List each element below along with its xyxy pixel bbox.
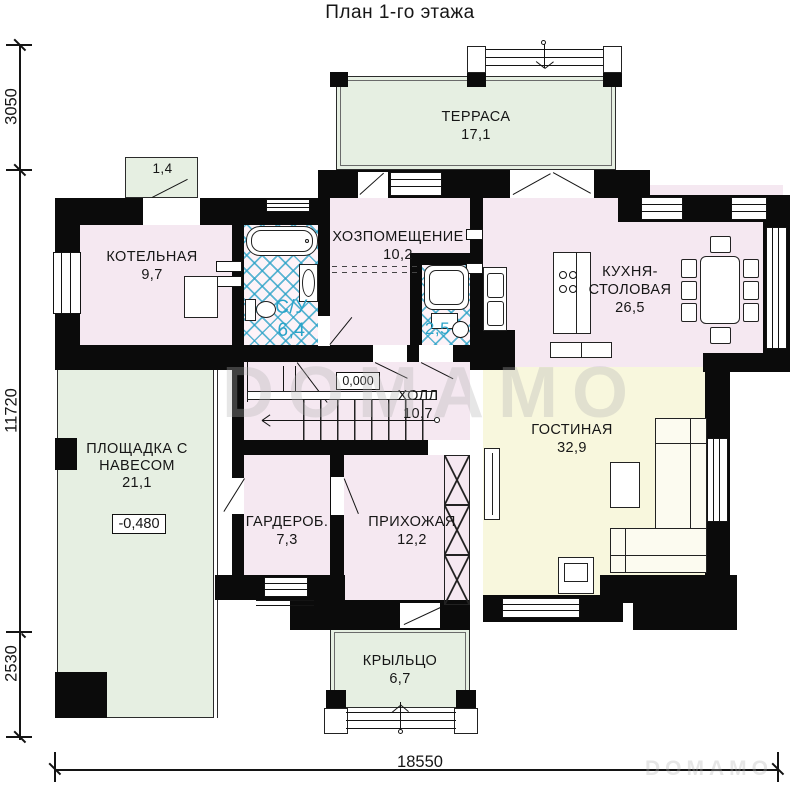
elevation-mark-platform: -0,480: [112, 514, 166, 534]
dim-ext-4: [6, 736, 32, 738]
wc1-name: С/У: [264, 296, 319, 319]
room-label-terrace: ТЕРРАСА 17,1: [396, 108, 556, 144]
door-opening-terrace-double: [510, 170, 594, 198]
kitchen-name-1: КУХНЯ-: [560, 263, 700, 281]
utility-dashed-line: [332, 266, 418, 267]
dim-ext-2: [6, 169, 32, 171]
room-label-wc2: 2,5: [415, 320, 460, 338]
window-kitchen-top-2: [731, 197, 767, 220]
porch-pier: [456, 690, 476, 708]
bathtub-inner: [251, 230, 313, 252]
door-opening-terrace-1: [358, 172, 388, 198]
porch-pier: [326, 690, 346, 708]
sink-bowl: [487, 301, 504, 326]
living-area: 32,9: [512, 439, 632, 457]
boiler-name: КОТЕЛЬНАЯ: [92, 248, 212, 266]
entry-name: ПРИХОЖАЯ: [352, 513, 472, 531]
terrace-name: ТЕРРАСА: [396, 108, 556, 126]
cabinet-inner: [564, 563, 588, 582]
window-kitchen-top-1: [641, 197, 683, 220]
utility-name: ХОЗПОМЕЩЕНИЕ: [328, 228, 468, 246]
platform-name: ПЛОЩАДКА С НАВЕСОМ: [62, 441, 212, 475]
window-living-bottom: [502, 598, 580, 618]
terrace-pier: [467, 72, 486, 87]
wall: [633, 600, 737, 630]
sofa-arm-line: [625, 529, 626, 572]
porch-column-base: [454, 708, 478, 734]
utility-dashed-line: [332, 272, 418, 273]
closet-section: [444, 555, 470, 605]
fireplace-cabinet: [558, 557, 594, 594]
wc1-area: 6,4: [264, 319, 319, 342]
terrace-pier: [603, 72, 622, 87]
dim-line-left: [19, 44, 21, 740]
boiler-area: 9,7: [92, 266, 212, 284]
platform-area: 21,1: [62, 475, 212, 492]
porch-area: 6,7: [340, 670, 460, 688]
room-label-canopy: 1,4: [135, 160, 190, 178]
window-wc1: [266, 199, 310, 212]
sofa-cushion-line: [656, 443, 706, 444]
door-opening-wc1: [318, 316, 330, 346]
vent-slot: [466, 229, 483, 240]
shower-inner: [429, 270, 464, 305]
chair: [743, 281, 759, 300]
shower-cabin: [424, 265, 469, 310]
watermark-large: DOMAMO: [222, 352, 642, 434]
toilet-tank: [245, 299, 256, 321]
watermark-small: DOMAMO: [645, 757, 773, 781]
window-living-right: [707, 438, 728, 522]
platform-pier: [55, 672, 107, 718]
vent-slot: [216, 276, 242, 287]
coffee-table: [610, 462, 640, 508]
utility-area: 10,2: [328, 246, 468, 264]
window-kitchen-right: [766, 227, 787, 349]
porch-name: КРЫЛЬЦО: [340, 652, 460, 670]
room-label-entry: ПРИХОЖАЯ 12,2: [352, 513, 472, 549]
chair: [710, 327, 731, 344]
bathtub-drain: [305, 239, 309, 243]
room-label-utility: ХОЗПОМЕЩЕНИЕ 10,2: [328, 228, 468, 264]
dim-ext-5: [54, 752, 56, 782]
window-wardrobe: [264, 577, 308, 597]
terrace-column-base: [603, 46, 622, 73]
wardrobe-name: ГАРДЕРОБ.: [237, 513, 337, 531]
kitchen-name-2: СТОЛОВАЯ: [560, 281, 700, 299]
window-boiler: [53, 252, 81, 314]
window-utility-terrace: [390, 172, 442, 196]
sofa-section-vertical: [655, 418, 707, 532]
wall: [55, 345, 232, 370]
room-label-boiler: КОТЕЛЬНАЯ 9,7: [92, 248, 212, 284]
chair: [743, 303, 759, 322]
tv-stand: [484, 448, 500, 520]
tv-line: [492, 453, 493, 515]
door-opening-canopy: [143, 198, 200, 225]
window-sill-line: [256, 600, 314, 601]
chair: [743, 259, 759, 278]
washbasin-bowl: [302, 269, 315, 297]
opening-hall-entry: [428, 440, 470, 455]
room-label-wardrobe: ГАРДЕРОБ. 7,3: [237, 513, 337, 549]
vent-slot: [216, 261, 242, 272]
window-sill-line: [256, 605, 314, 606]
chair: [710, 236, 731, 253]
room-label-kitchen: КУХНЯ- СТОЛОВАЯ 26,5: [560, 263, 700, 317]
terrace-entry-arrow-shaft: [544, 44, 545, 68]
wall: [290, 600, 470, 630]
terrace-pier: [330, 72, 348, 87]
floor-plan: План 1-го этажа 3050 11720 2530 18550: [0, 0, 800, 792]
kitchen-sink-counter: [483, 267, 507, 331]
entry-area: 12,2: [352, 531, 472, 549]
page-title: План 1-го этажа: [300, 4, 500, 22]
door-opening-wardrobe: [331, 477, 344, 515]
kitchen-area: 26,5: [560, 299, 700, 317]
room-label-platform: ПЛОЩАДКА С НАВЕСОМ 21,1: [62, 441, 212, 492]
sofa-section-horizontal: [610, 528, 707, 573]
room-platform: [57, 368, 215, 718]
sink-bowl: [487, 273, 504, 298]
bathtub: [246, 226, 318, 256]
sofa-back-line: [690, 419, 691, 531]
terrace-area: 17,1: [396, 126, 556, 144]
dining-table: [700, 256, 740, 324]
dim-ext-1: [6, 44, 32, 46]
dim-ext-6: [777, 752, 779, 782]
room-label-porch: КРЫЛЬЦО 6,7: [340, 652, 460, 688]
room-label-wc1: С/У 6,4: [264, 296, 319, 342]
dim-ext-3: [6, 631, 32, 633]
terrace-entry-arrow-origin: [541, 40, 546, 45]
porch-arrow-dot: [398, 729, 403, 734]
platform-edge-line: [213, 368, 218, 718]
wardrobe-area: 7,3: [237, 531, 337, 549]
porch-column-base: [324, 708, 348, 734]
terrace-column-base: [467, 46, 486, 73]
closet-section: [444, 455, 470, 505]
